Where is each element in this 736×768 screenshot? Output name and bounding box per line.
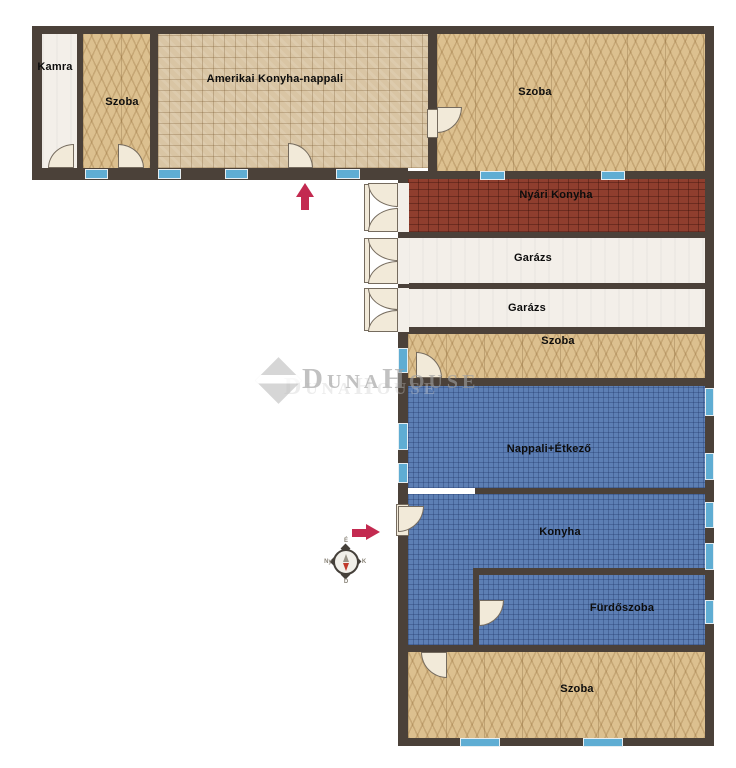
compass-needle-south <box>343 563 349 571</box>
window <box>480 171 505 180</box>
compass-label-north: É <box>344 538 348 544</box>
wall-right <box>705 26 714 746</box>
arrow-stem <box>352 529 366 537</box>
compass-needle-north <box>343 554 349 562</box>
room-label-garazs-1: Garázs <box>514 252 552 264</box>
arrow-head <box>296 183 314 197</box>
room-szoba-top-right-floor <box>437 34 705 171</box>
window <box>705 388 714 416</box>
wall-nyari-garazs1 <box>408 232 705 238</box>
window <box>85 169 108 179</box>
door-arc-garazs2-bottom <box>368 310 398 332</box>
window <box>460 738 500 747</box>
door-arc-garazs1-bottom <box>368 261 398 284</box>
window <box>583 738 623 747</box>
room-label-konyha: Konyha <box>539 526 581 538</box>
wall-nappali-konyha <box>475 488 705 494</box>
wall-garazs1-garazs2 <box>408 283 705 289</box>
window <box>705 453 714 480</box>
watermark: DunaHouse DunaHouse <box>240 352 500 408</box>
door-arc-garazs2-top <box>368 288 398 310</box>
room-label-amerikai: Amerikai Konyha-nappali <box>207 73 344 85</box>
wall-kamra-szoba <box>77 34 83 168</box>
compass-label-east: K <box>362 559 366 565</box>
wall-furdoszoba-top <box>473 568 705 575</box>
window <box>705 502 714 528</box>
window <box>398 423 408 450</box>
room-label-furdoszoba: Fürdőszoba <box>590 602 654 614</box>
compass-label-west: Ny <box>324 559 332 565</box>
door-arc-garazs1-top <box>368 238 398 261</box>
floor-plan: Kamra Szoba Amerikai Konyha-nappali Szob… <box>0 0 736 768</box>
wall-szoba-tr-nyari <box>408 171 705 179</box>
room-label-szoba-top-right: Szoba <box>518 86 551 98</box>
room-garazs-1-floor <box>408 238 705 283</box>
entrance-arrow-up-icon <box>296 183 314 211</box>
room-nyari-konyha-floor <box>408 179 705 232</box>
room-label-kamra: Kamra <box>37 61 72 73</box>
room-label-szoba-strip: Szoba <box>541 335 574 347</box>
room-label-szoba-left: Szoba <box>105 96 138 108</box>
wall-garazs2-strip <box>408 327 705 334</box>
room-garazs-2-floor <box>408 289 705 327</box>
compass-label-south: D <box>344 579 348 585</box>
arrow-head <box>366 524 380 540</box>
window <box>225 169 248 179</box>
room-label-nyari-konyha: Nyári Konyha <box>519 189 592 201</box>
window <box>158 169 181 179</box>
wall-konyha-szoba-bottom <box>408 645 705 652</box>
wall-left <box>32 26 42 180</box>
wall-bottom <box>398 738 714 746</box>
watermark-text: DunaHouse <box>302 362 479 396</box>
wall-top <box>32 26 714 34</box>
wall-amerikai-szoba-tr <box>428 34 437 171</box>
door-arc-nyari-bottom <box>368 208 398 232</box>
window <box>705 600 714 624</box>
room-label-nappali: Nappali+Étkező <box>507 443 591 455</box>
door-arc-nyari-top <box>368 183 398 207</box>
entrance-arrow-right-icon <box>352 524 380 541</box>
window <box>398 463 408 483</box>
room-label-garazs-2: Garázs <box>508 302 546 314</box>
wall-szoba-amerikai <box>150 34 158 168</box>
window <box>601 171 625 180</box>
arrow-stem <box>301 196 309 210</box>
compass-circle <box>333 549 359 575</box>
room-label-szoba-bottom: Szoba <box>560 683 593 695</box>
window <box>705 543 714 570</box>
room-szoba-bottom-floor <box>408 652 705 738</box>
compass-rose-icon: É K D Ny <box>326 540 366 584</box>
window <box>336 169 360 179</box>
